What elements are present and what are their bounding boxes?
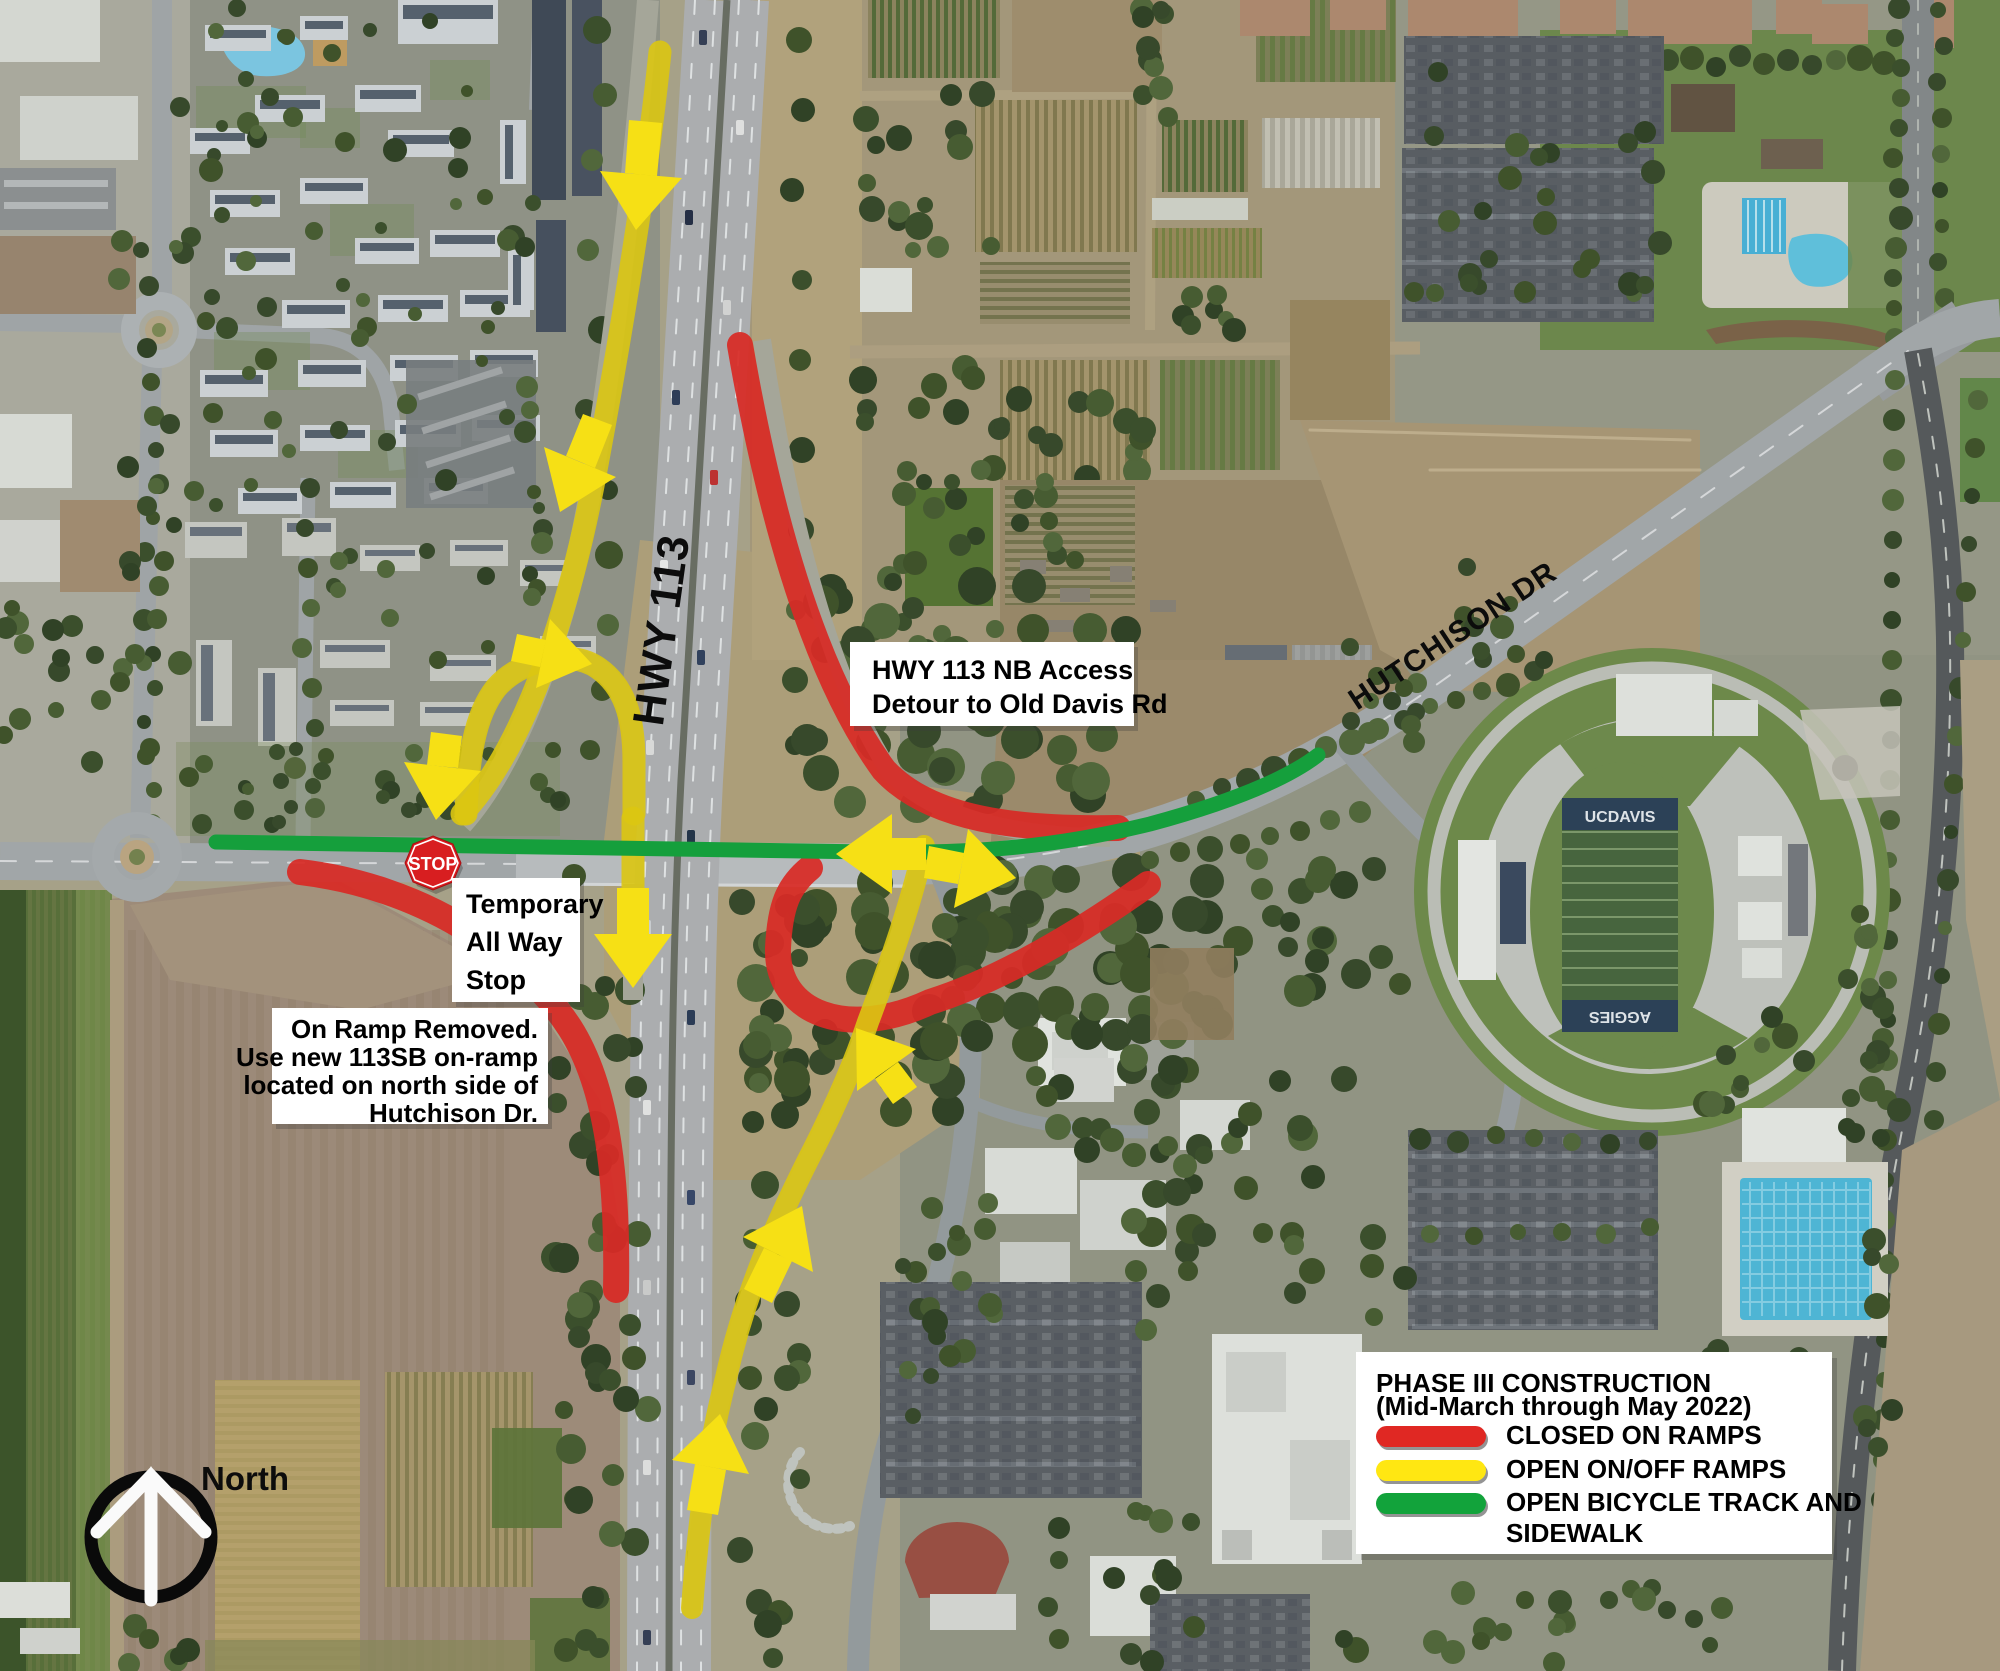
svg-text:All Way: All Way <box>466 927 563 957</box>
svg-text:Stop: Stop <box>466 965 526 995</box>
svg-text:Use new 113SB on-ramp: Use new 113SB on-ramp <box>236 1042 538 1072</box>
svg-text:Temporary: Temporary <box>466 889 604 919</box>
svg-text:SIDEWALK: SIDEWALK <box>1506 1518 1643 1548</box>
svg-text:Hutchison Dr.: Hutchison Dr. <box>369 1098 538 1128</box>
svg-text:On Ramp Removed.: On Ramp Removed. <box>291 1014 538 1044</box>
svg-text:STOP: STOP <box>409 854 458 874</box>
svg-text:HWY 113 NB Access: HWY 113 NB Access <box>872 655 1133 685</box>
svg-text:CLOSED ON RAMPS: CLOSED ON RAMPS <box>1506 1420 1762 1450</box>
svg-text:OPEN BICYCLE TRACK AND: OPEN BICYCLE TRACK AND <box>1506 1487 1862 1517</box>
svg-text:North: North <box>201 1460 289 1497</box>
svg-text:OPEN ON/OFF RAMPS: OPEN ON/OFF RAMPS <box>1506 1454 1786 1484</box>
svg-text:located on north side of: located on north side of <box>243 1070 538 1100</box>
svg-text:(Mid-March through May 2022): (Mid-March through May 2022) <box>1376 1391 1752 1421</box>
svg-text:Detour to Old Davis Rd: Detour to Old Davis Rd <box>872 689 1168 719</box>
